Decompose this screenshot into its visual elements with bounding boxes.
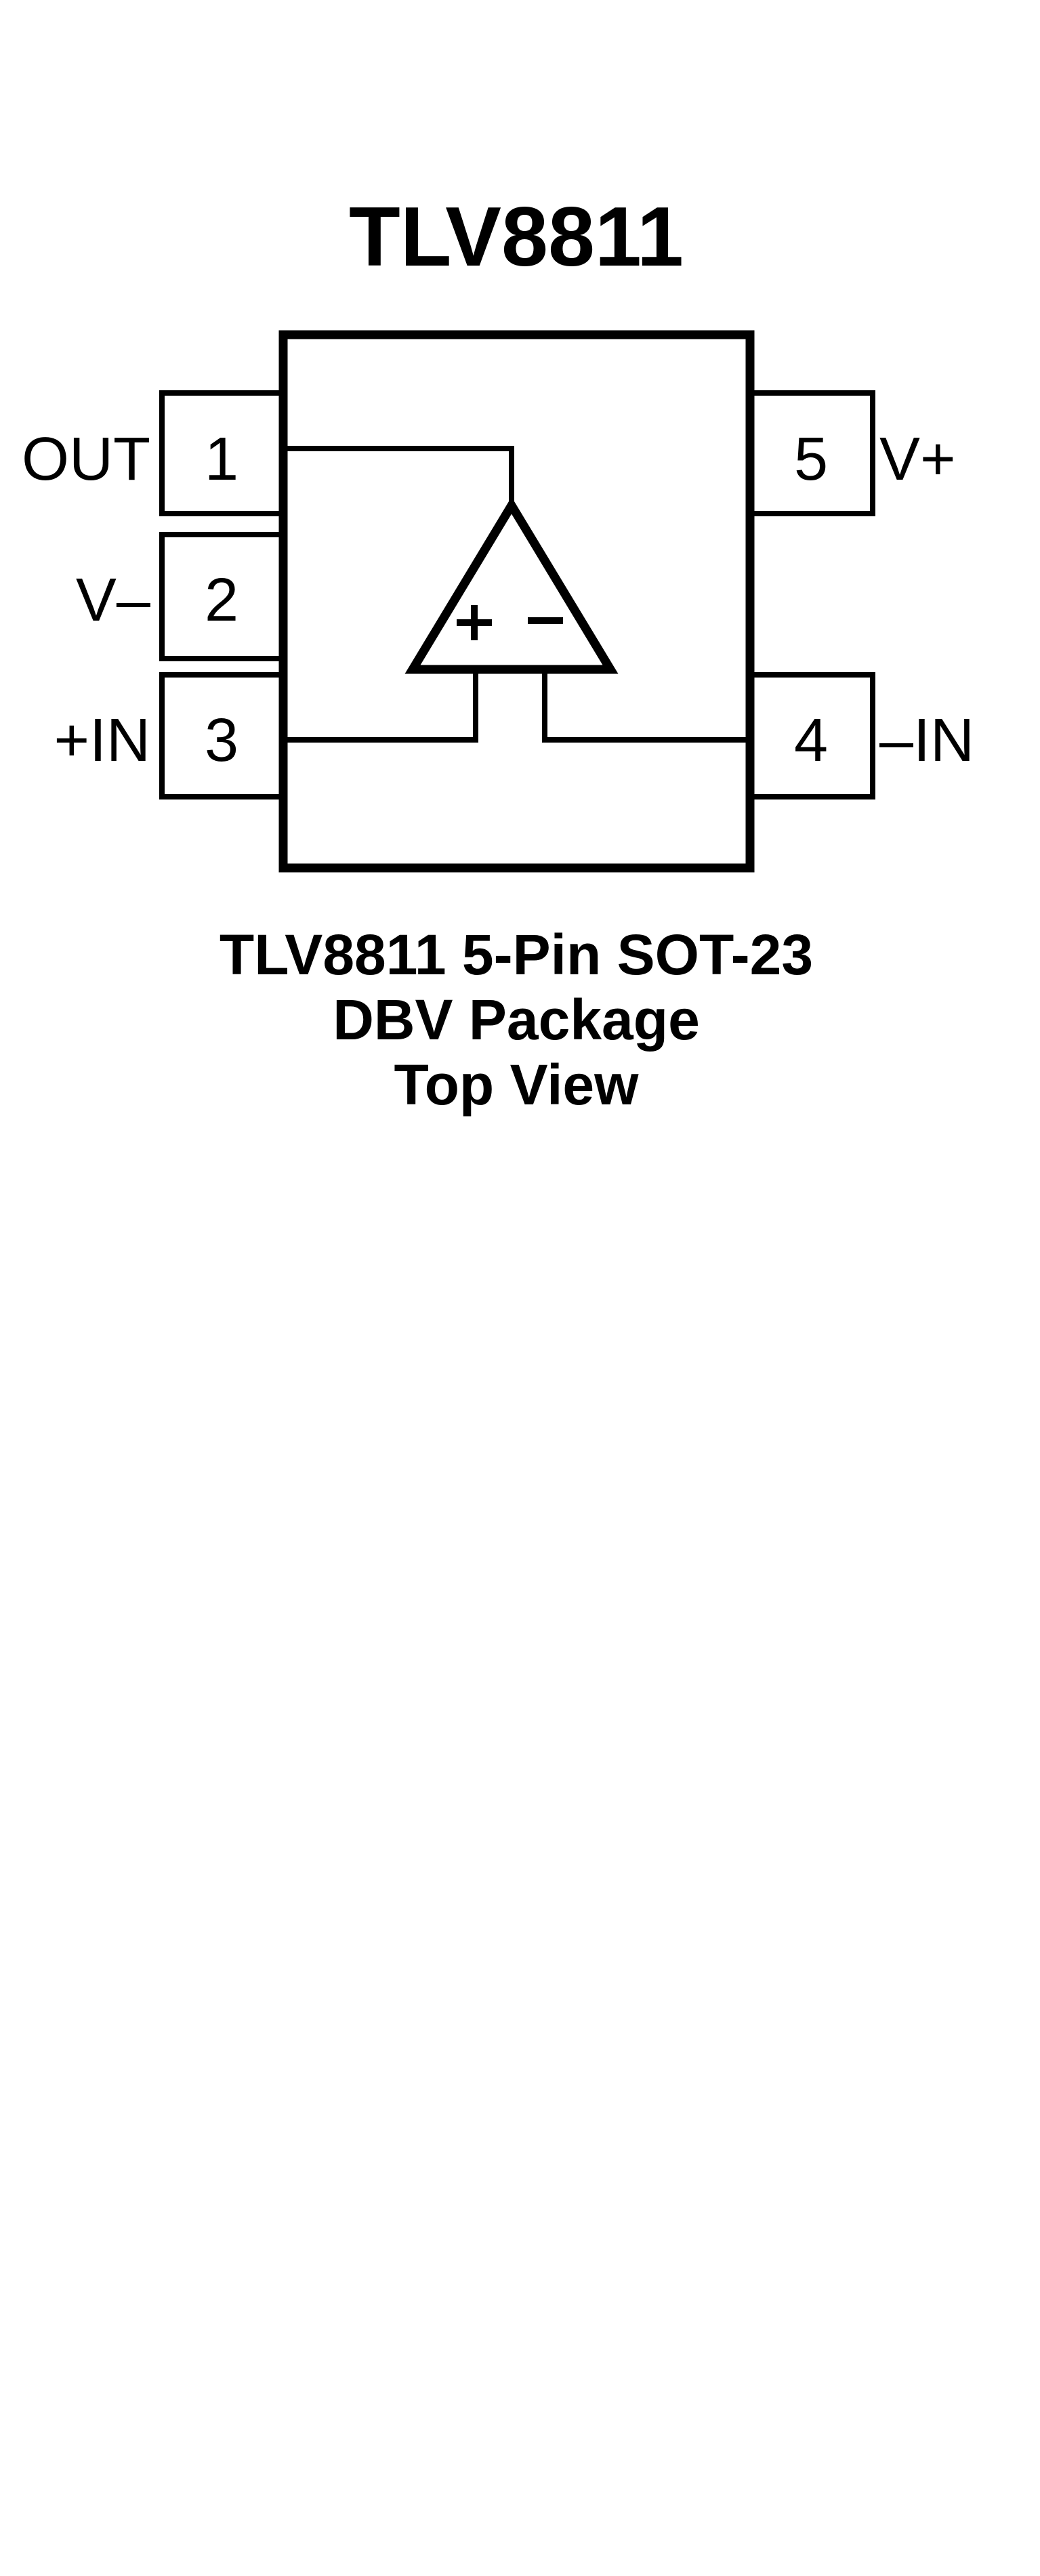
pin-2-number: 2 xyxy=(205,566,238,634)
pin-3-number: 3 xyxy=(205,707,238,774)
pin-4-label: –IN xyxy=(879,707,974,774)
pinout-diagram: TLV8811 1 2 3 4 5 OUT V– +IN –IN V+ TLV8… xyxy=(0,0,1040,2576)
pin-3-label: +IN xyxy=(54,707,150,774)
pin-2-label: V– xyxy=(76,566,151,634)
caption-line-1: TLV8811 5-Pin SOT-23 xyxy=(220,923,813,986)
pin-4-number: 4 xyxy=(794,707,828,774)
pin-1-number: 1 xyxy=(205,425,238,493)
pin-1-label: OUT xyxy=(22,425,150,493)
caption-line-3: Top View xyxy=(394,1053,640,1117)
background xyxy=(0,0,1040,2576)
pin-5-label: V+ xyxy=(879,425,956,493)
pin-5-number: 5 xyxy=(794,425,828,493)
caption-line-2: DBV Package xyxy=(333,988,700,1052)
chip-title: TLV8811 xyxy=(349,190,684,284)
